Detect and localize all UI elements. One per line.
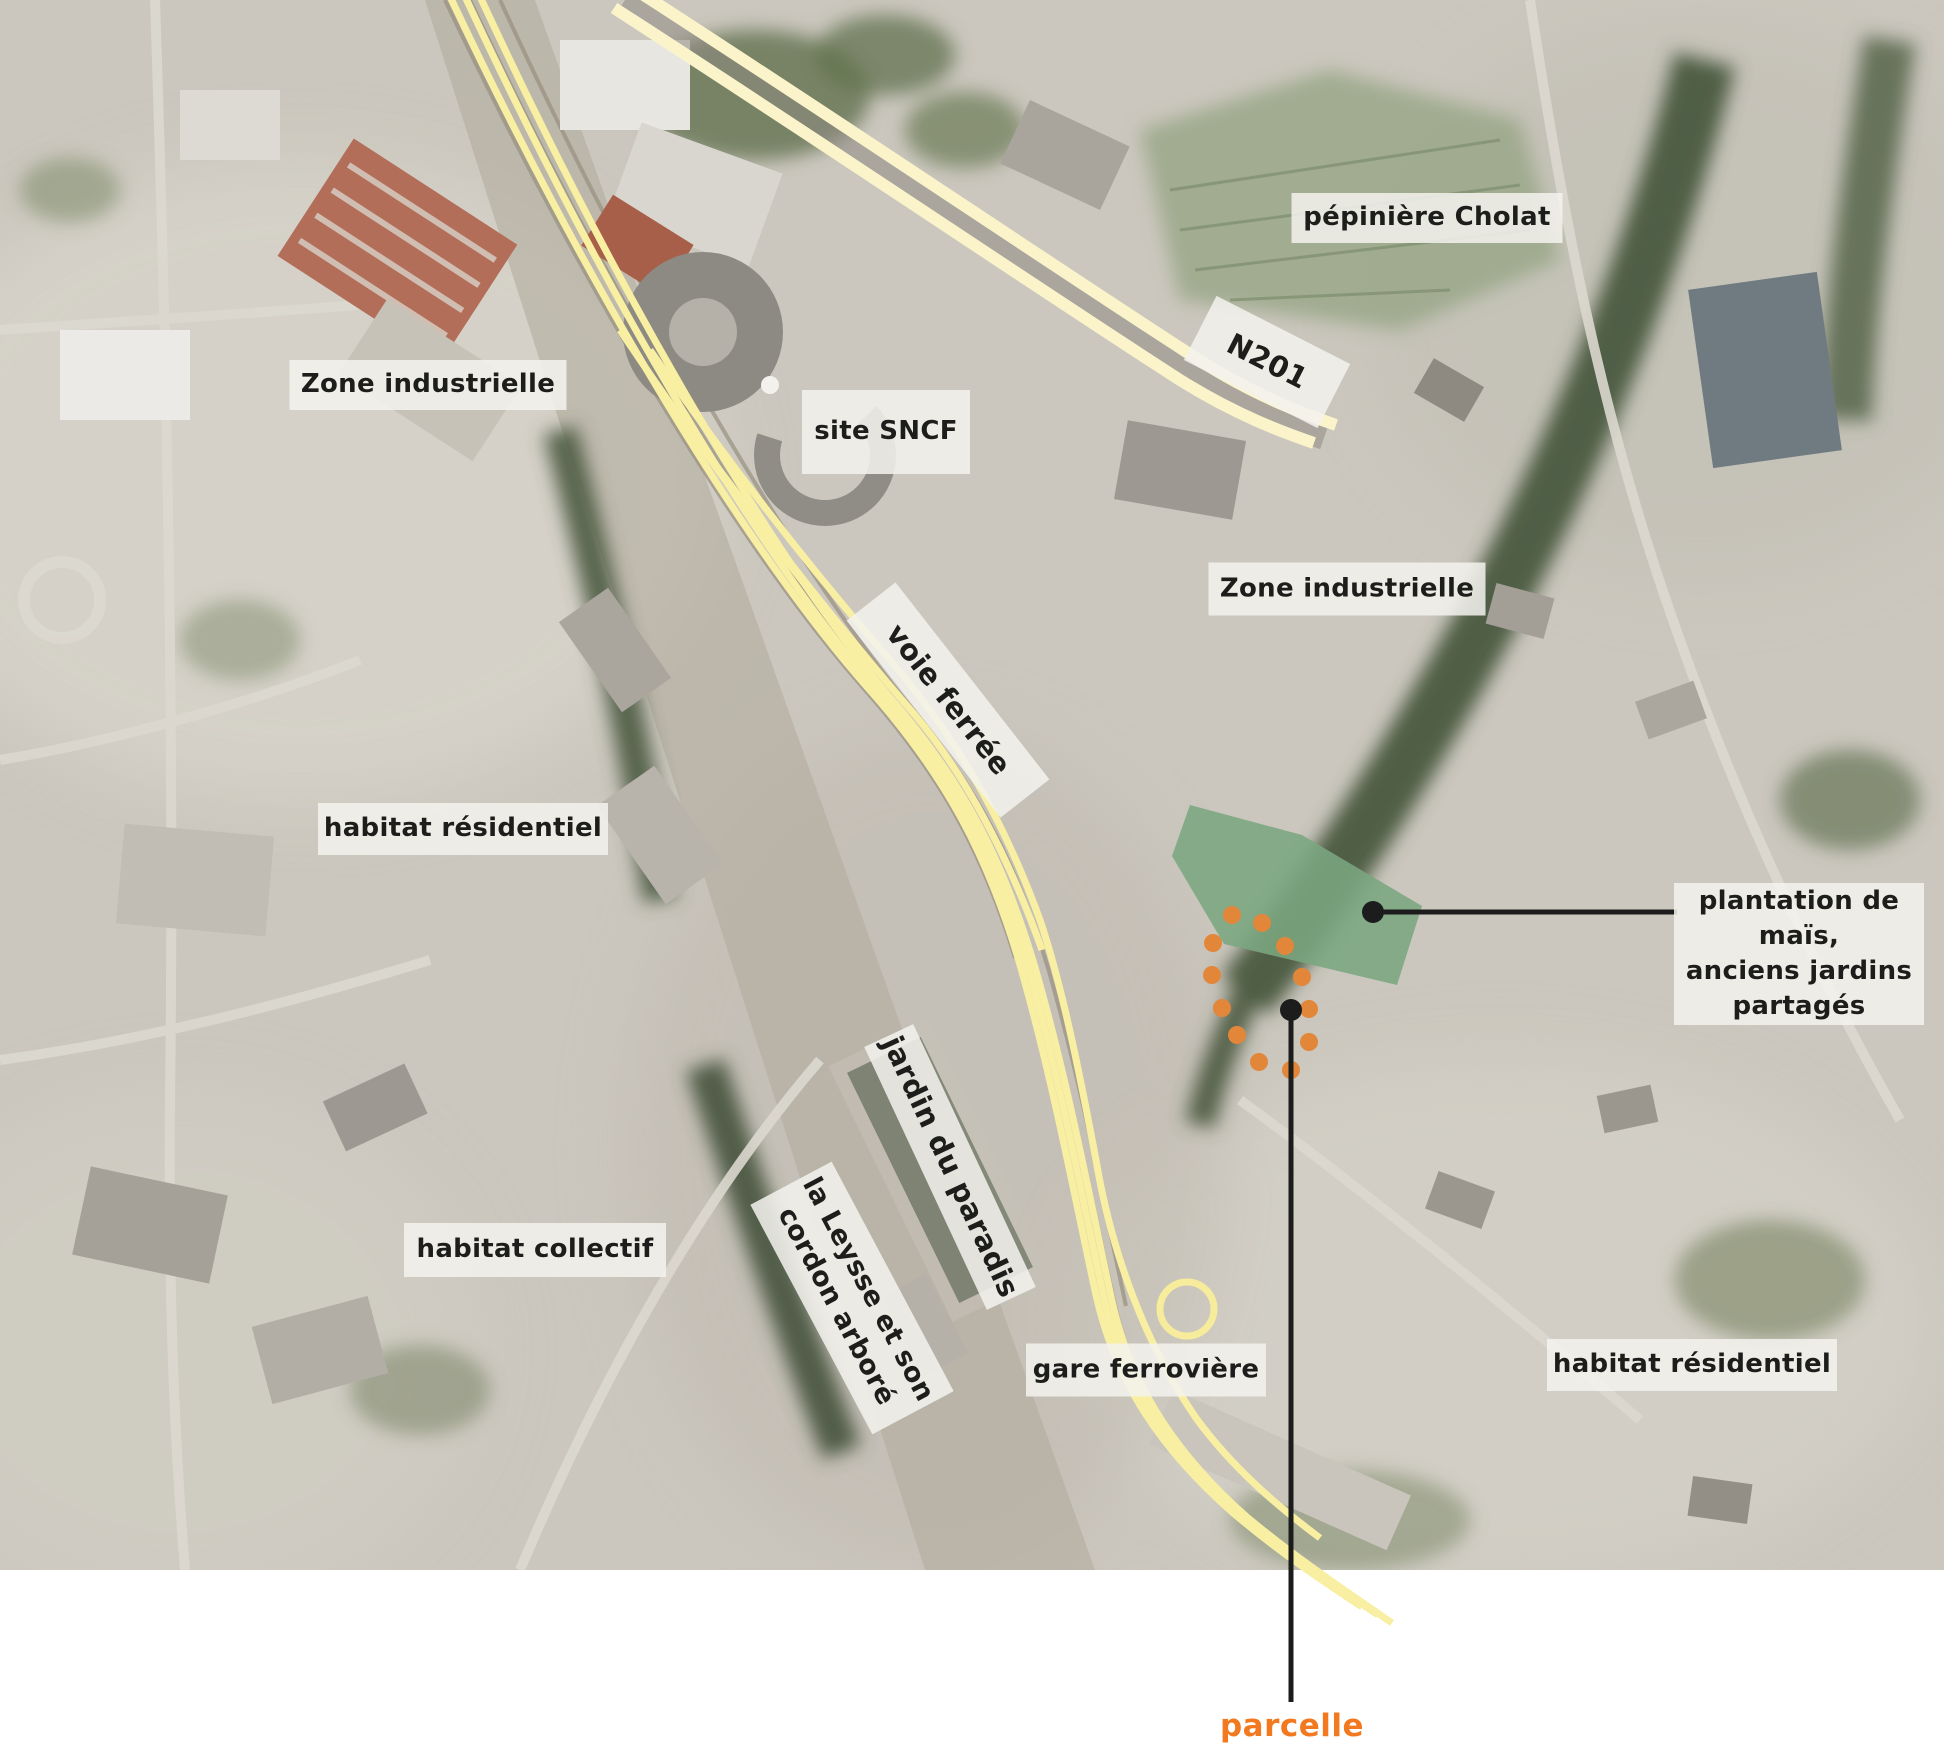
annotation-label-plantation-line3: partagés	[1732, 989, 1865, 1024]
region-label-habitat-residentiel-east: habitat résidentiel	[1547, 1339, 1837, 1391]
region-label-habitat-collectif: habitat collectif	[404, 1223, 666, 1277]
region-label-zone-industrielle-east: Zone industrielle	[1209, 563, 1486, 616]
map-canvas	[0, 0, 1944, 1752]
annotation-label-plantation-line2: anciens jardins	[1686, 954, 1912, 989]
parcelle-leader-dot	[1280, 999, 1302, 1021]
region-label-site-sncf: site SNCF	[802, 390, 970, 474]
plantation-leader-dot	[1362, 901, 1384, 923]
region-label-habitat-residentiel-west: habitat résidentiel	[318, 803, 608, 855]
annotation-label-parcelle: parcelle	[1220, 1708, 1364, 1744]
region-label-gare-ferroviere: gare ferrovière	[1026, 1344, 1266, 1397]
annotation-label-plantation: plantation de maïs, anciens jardins part…	[1674, 883, 1924, 1025]
region-label-pepiniere-cholat: pépinière Cholat	[1292, 193, 1563, 243]
annotated-aerial-map: Zone industrielle site SNCF pépinière Ch…	[0, 0, 1944, 1752]
region-label-zone-industrielle-west: Zone industrielle	[290, 360, 567, 410]
annotation-label-plantation-line1: plantation de maïs,	[1674, 884, 1924, 954]
